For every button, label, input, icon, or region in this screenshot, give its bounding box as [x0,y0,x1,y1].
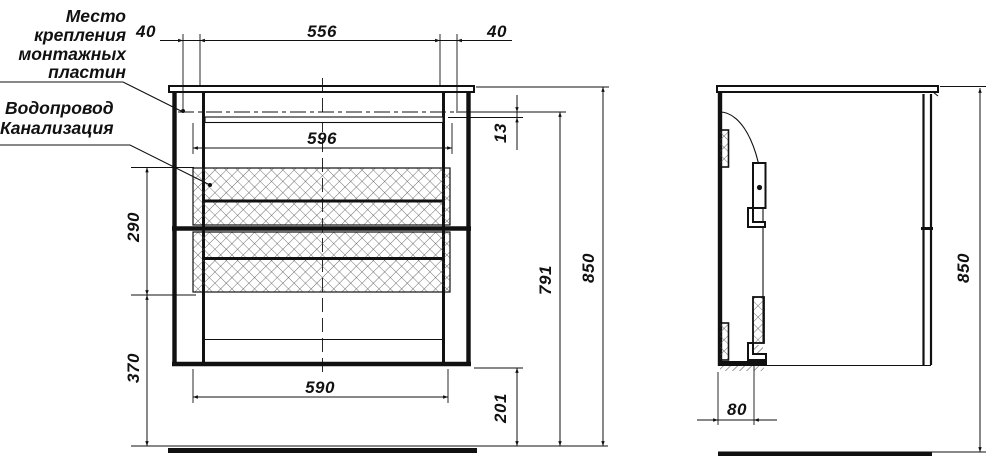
countertop-front [169,86,474,92]
countertop-side [717,86,938,92]
side-view-dimensions: 80 850 [697,87,986,453]
bracket-lower-hatch [753,345,763,354]
cabinet-installation-drawing: 40 556 40 596 13 290 370 590 201 791 [0,0,992,456]
dim-mounting-plate-height: 791 [536,265,555,295]
dim-overall-height-front: 850 [579,253,598,283]
bracket-lower [753,297,764,343]
dim-plate-to-rail: 13 [491,123,510,143]
dim-plate-span: 556 [307,22,337,41]
mounting-note-line4: пластин [48,62,126,82]
bottom-section-hatch [720,366,764,371]
utilities-note-line2: Канализация [0,118,114,138]
dim-drawer-zone-height: 290 [124,212,143,243]
leader-dot [208,183,212,187]
drawer-front-upper-hatch [193,168,450,225]
dim-drawer-front-width: 590 [305,378,335,397]
utilities-note-line1: Водопровод [5,98,114,118]
leader-line-utilities [0,145,210,185]
leader-dot [181,109,185,113]
drawer-front-lower-hatch [193,232,450,292]
annotations: Место крепления монтажных пластин Водопр… [0,6,212,187]
dim-inner-width: 596 [307,129,337,148]
front-view [131,78,608,451]
dim-back-offset: 80 [727,400,747,419]
mounting-note-line1: Место [66,6,127,26]
top-rail [205,117,443,123]
bracket-pin [757,185,762,190]
mounting-note-line2: крепления [34,25,126,45]
side-view [717,86,986,454]
dim-lower-zone-height: 370 [124,353,143,383]
dim-bottom-clearance: 201 [491,393,510,424]
technical-drawing-page: 40 556 40 596 13 290 370 590 201 791 [0,0,992,456]
mounting-plate-upper [719,130,729,167]
mounting-plate-lower [719,323,729,360]
mounting-note-line3: монтажных [18,44,127,64]
dim-top-left-offset: 40 [135,22,156,41]
dim-overall-height-side: 850 [954,253,973,283]
dim-top-right-offset: 40 [486,22,507,41]
